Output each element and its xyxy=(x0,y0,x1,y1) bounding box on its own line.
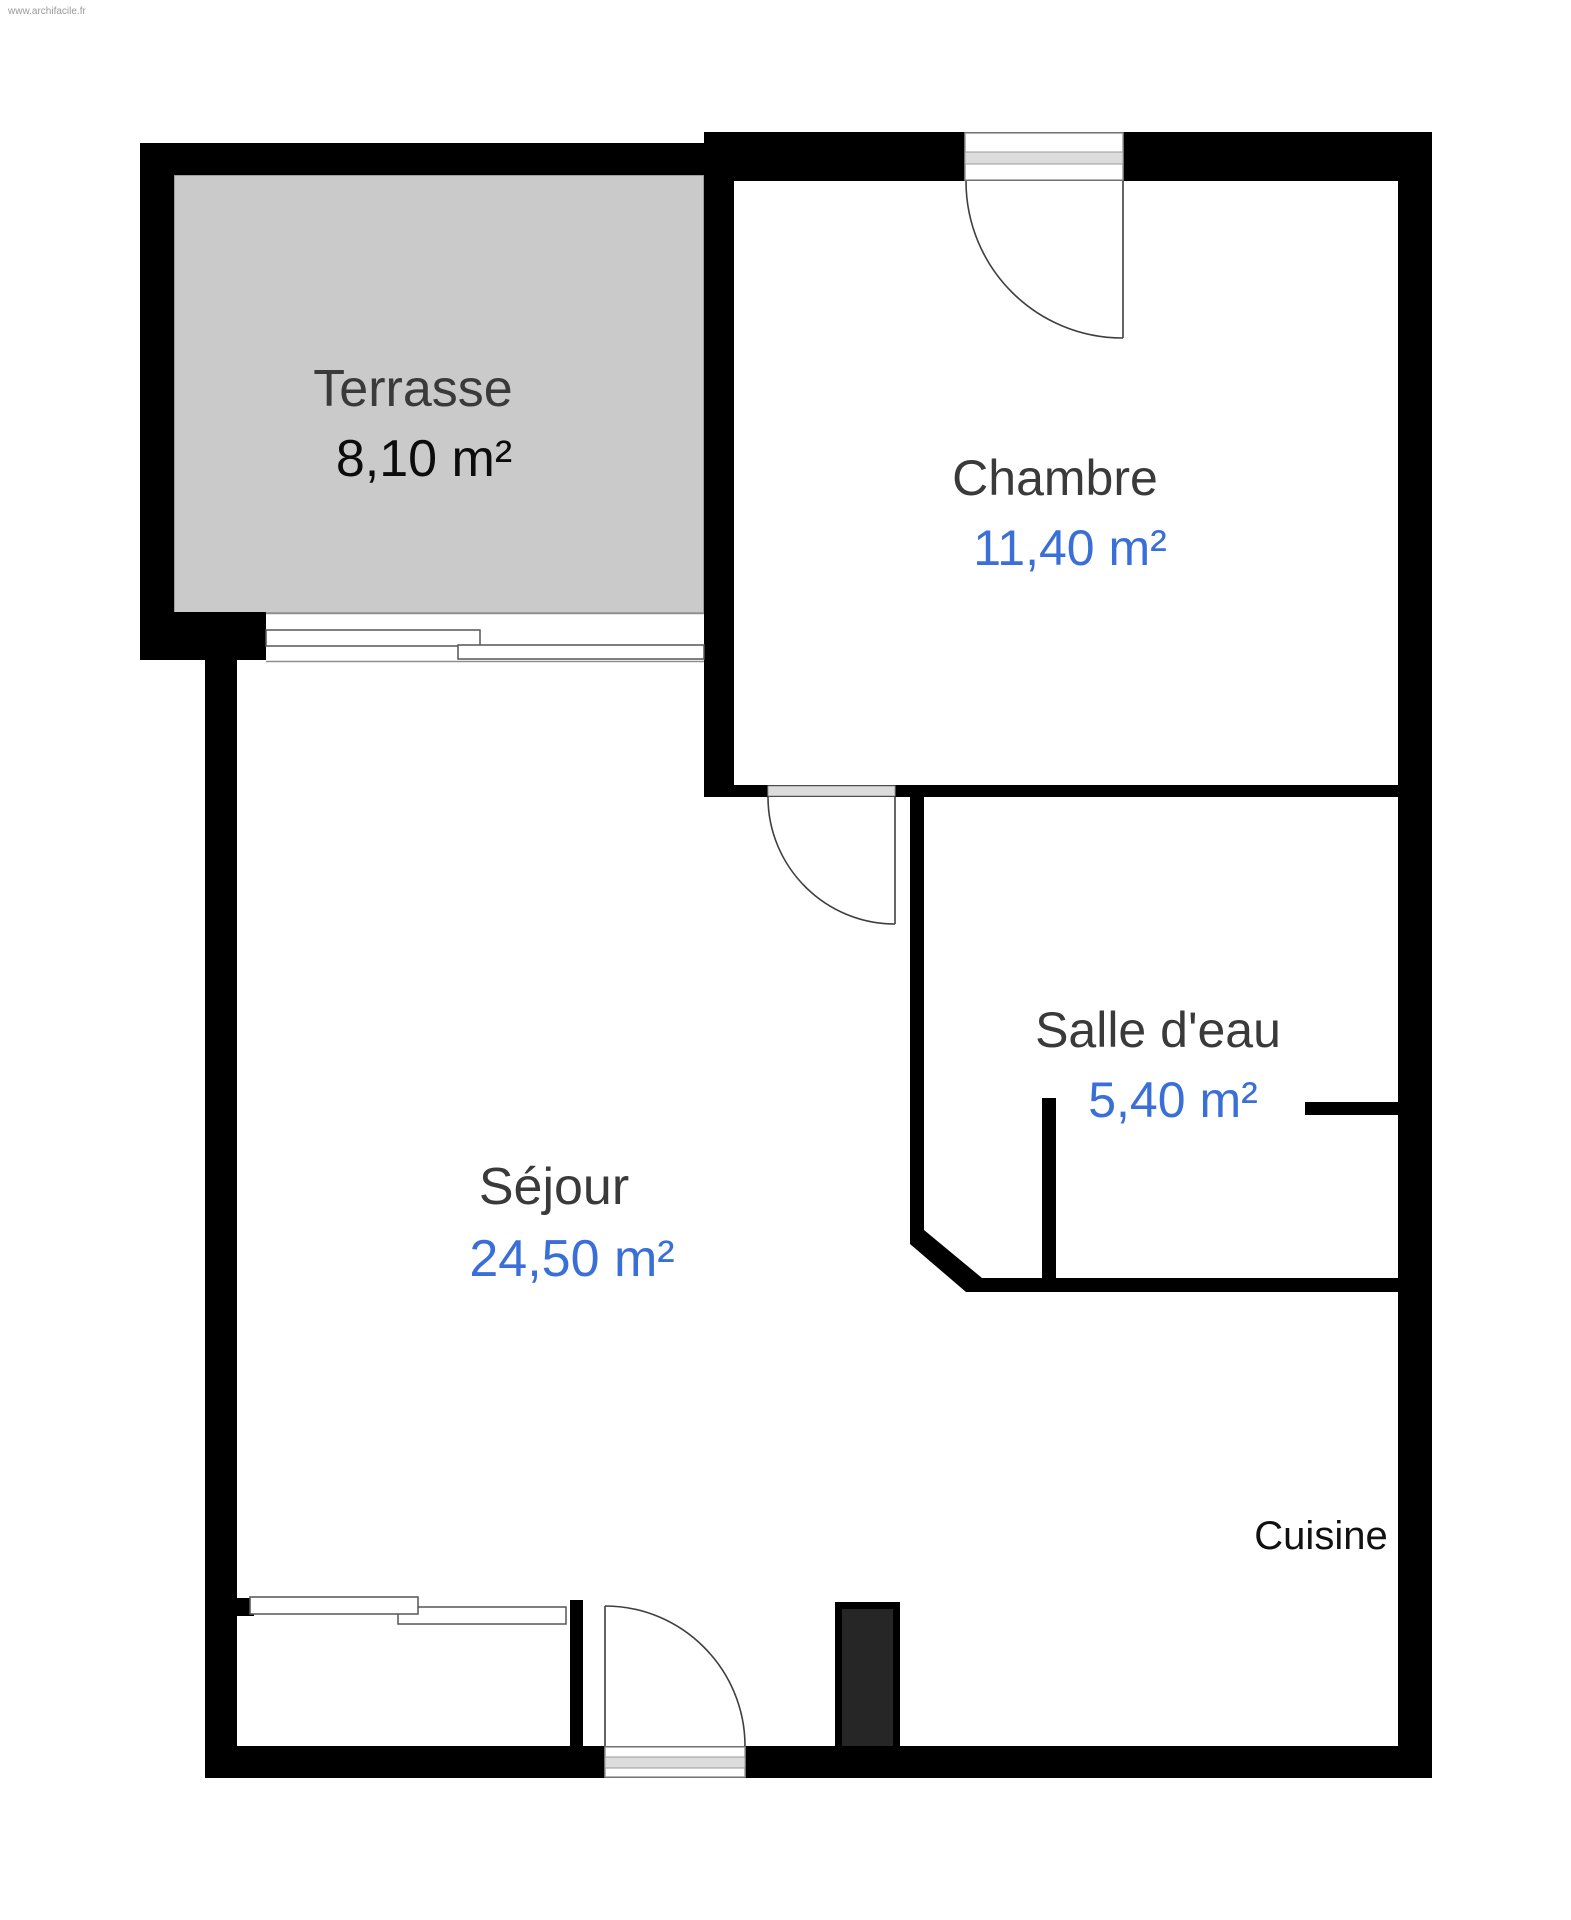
window-pane xyxy=(458,645,704,659)
room-label-terrasse: Terrasse xyxy=(313,360,512,418)
room-label-cuisine: Cuisine xyxy=(1254,1514,1387,1558)
wall-sejour-chambre-divider xyxy=(704,143,734,797)
wall-shower-partition xyxy=(1042,1098,1056,1292)
watermark: www.archifacile.fr xyxy=(7,6,86,17)
wall-right-outer xyxy=(1398,132,1432,1778)
room-label-chambre: Chambre xyxy=(952,450,1158,506)
window-pane xyxy=(398,1607,566,1624)
room-label-sejour: Séjour xyxy=(479,1158,629,1216)
room-area-chambre: 11,40 m² xyxy=(973,520,1167,576)
wall-shower-stub xyxy=(1305,1102,1400,1115)
wall-salledeau-left xyxy=(910,785,924,1237)
door-opening-chambre-bottom xyxy=(768,786,895,796)
window-pane xyxy=(266,630,480,646)
door-opening-chambre-top xyxy=(965,133,1123,180)
wall-left-outer xyxy=(205,612,237,1778)
door-opening-entrance xyxy=(605,1747,745,1777)
room-area-salle-deau: 5,40 m² xyxy=(1088,1072,1258,1128)
room-area-terrasse: 8,10 m² xyxy=(336,430,512,488)
window-pane xyxy=(250,1597,418,1614)
floor-plan-canvas: www.archifacile.fr Terrasse 8,10 m² Cham… xyxy=(0,0,1571,1920)
room-label-salle-deau: Salle d'eau xyxy=(1035,1002,1281,1058)
wall-closet-right-stub xyxy=(570,1600,583,1746)
wall-terrasse-left xyxy=(140,143,174,660)
wall-bottom-outer xyxy=(205,1746,1432,1778)
wall-terrasse-top xyxy=(140,143,712,175)
duct-block xyxy=(835,1602,900,1746)
room-area-sejour: 24,50 m² xyxy=(469,1230,674,1288)
